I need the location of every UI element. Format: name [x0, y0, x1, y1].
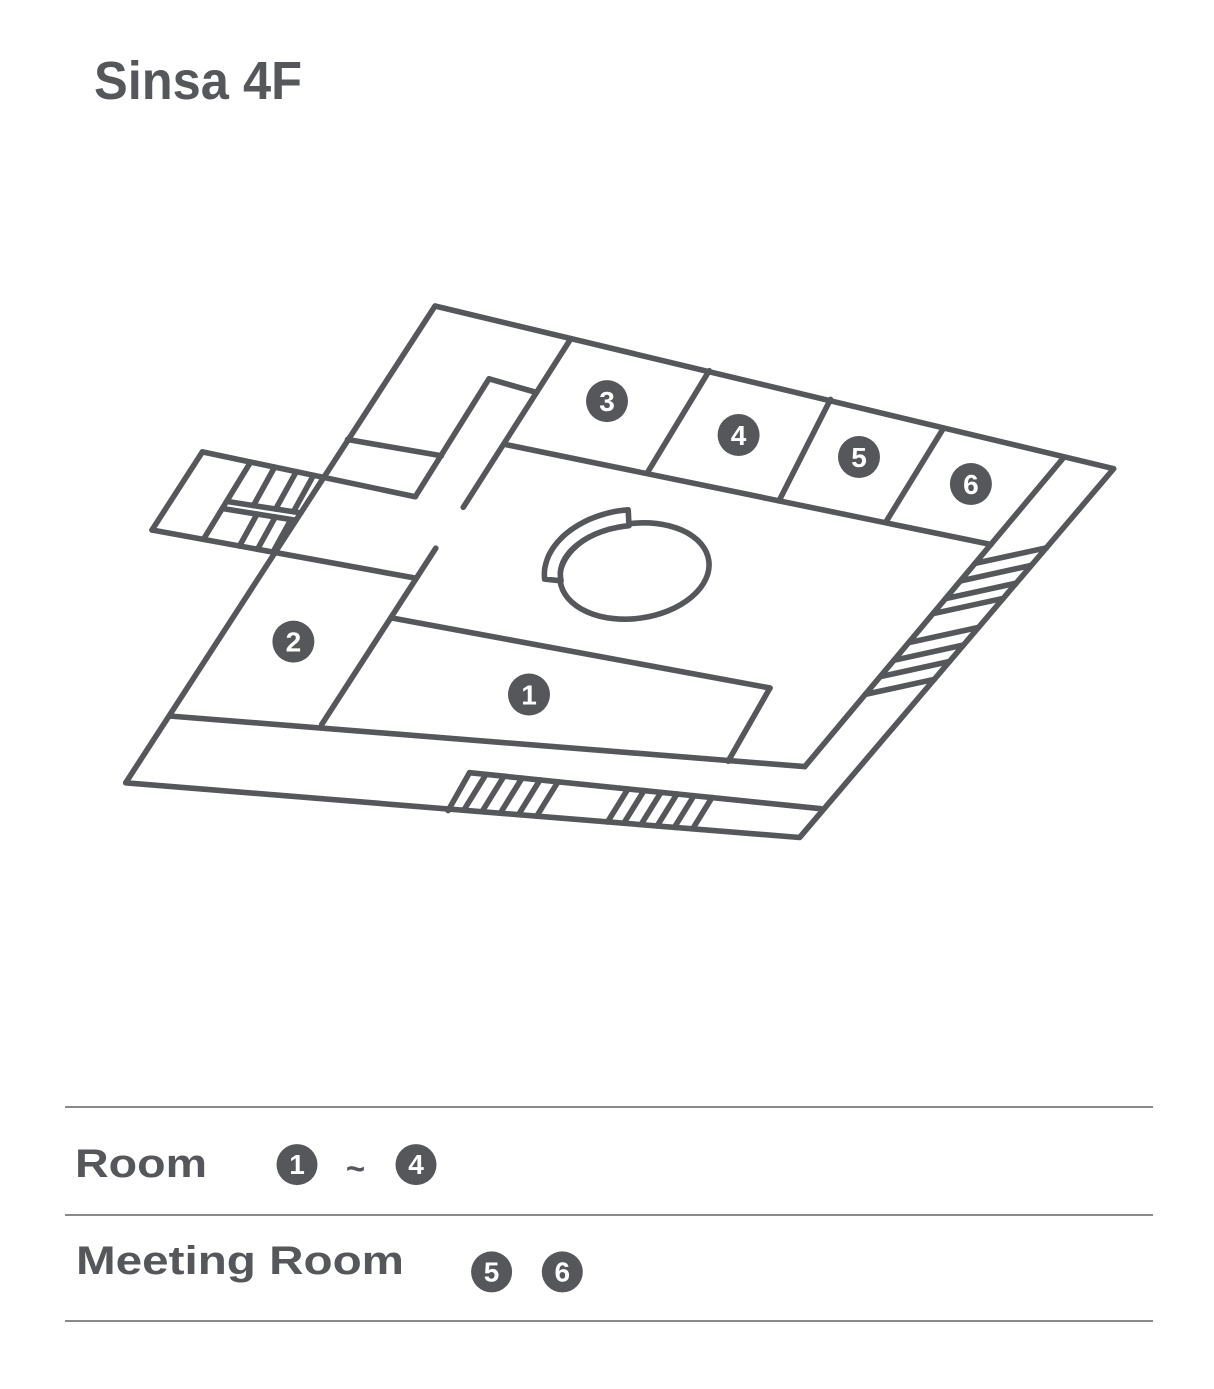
svg-text:Sinsa 4F: Sinsa 4F	[94, 51, 302, 111]
svg-text:Room: Room	[75, 1142, 207, 1186]
svg-text:5: 5	[851, 442, 867, 473]
svg-text:4: 4	[408, 1149, 424, 1180]
svg-text:1: 1	[289, 1149, 305, 1180]
svg-text:4: 4	[731, 420, 747, 451]
svg-text:6: 6	[555, 1257, 571, 1288]
svg-text:2: 2	[286, 626, 302, 657]
svg-text:5: 5	[484, 1257, 500, 1288]
svg-text:6: 6	[963, 469, 979, 500]
svg-text:1: 1	[521, 679, 537, 710]
svg-text:~: ~	[346, 1150, 365, 1187]
svg-text:3: 3	[599, 386, 615, 417]
svg-text:Meeting Room: Meeting Room	[76, 1239, 404, 1283]
